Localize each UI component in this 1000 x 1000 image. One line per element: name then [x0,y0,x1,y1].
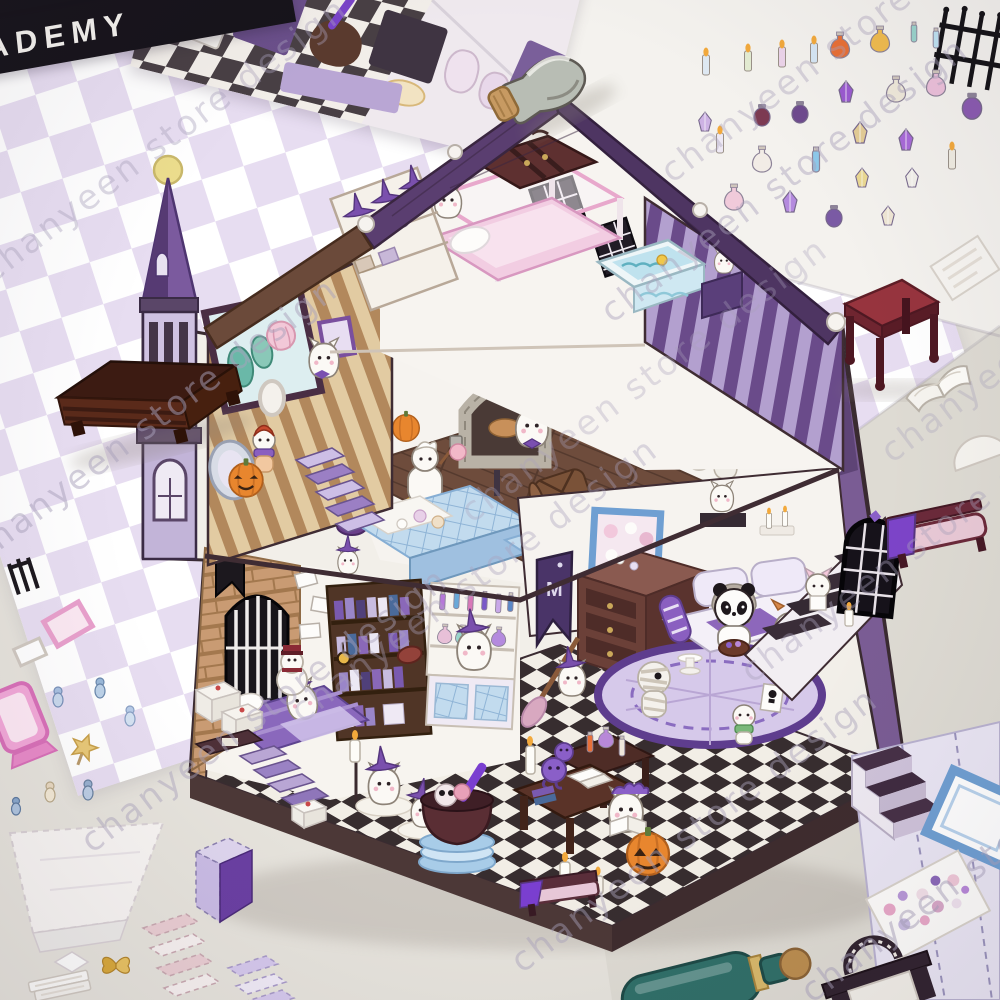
watermark-text: chanyeen store design [873,169,1000,471]
watermark-text: chanyeen store design [503,679,886,981]
watermark-text: chanyeen store design [283,429,666,731]
watermark-text: chanyeen store design [0,0,356,291]
watermark-text: chanyeen store design [793,709,1000,1000]
watermark-text: chanyeen store design [453,229,836,531]
watermark-layer: chanyeen store design chanyeen store des… [0,0,1000,1000]
watermark-text: chanyeen store design [653,0,1000,191]
watermark-text: chanyeen store design [733,389,1000,691]
watermark-text: chanyeen store design [593,29,976,331]
watermark-text: chanyeen store design [0,269,346,571]
product-photo: ADEMY [0,0,1000,1000]
watermark-text: chanyeen store design [73,559,456,861]
